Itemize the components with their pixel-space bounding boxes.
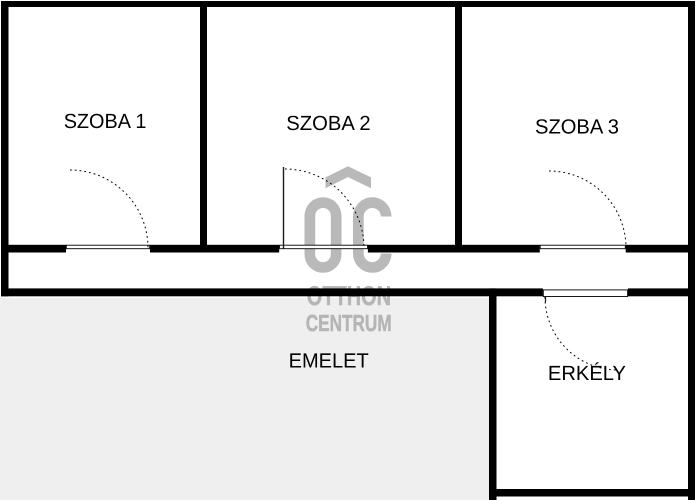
svg-text:CENTRUM: CENTRUM	[306, 310, 392, 336]
svg-text:SZOBA 2: SZOBA 2	[286, 112, 370, 135]
svg-text:EMELET: EMELET	[289, 349, 370, 372]
svg-text:SZOBA 3: SZOBA 3	[535, 116, 619, 139]
svg-text:ERKÉLY: ERKÉLY	[548, 362, 626, 385]
svg-text:SZOBA 1: SZOBA 1	[64, 110, 147, 133]
